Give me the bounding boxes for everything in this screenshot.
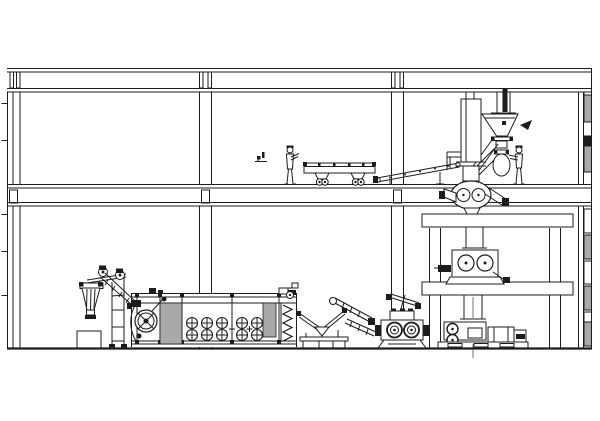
- roller-mill: [375, 294, 429, 348]
- worker-bagger: [509, 146, 525, 185]
- floor-item: [255, 152, 267, 162]
- dryer: [127, 283, 298, 347]
- elevation-drawing: [0, 0, 600, 421]
- tower-platform-upper: [422, 214, 573, 227]
- right-wall: [578, 68, 592, 348]
- mill-upper: [434, 227, 510, 284]
- plant-elevation-page: [0, 0, 600, 421]
- wall-tick-marks: [2, 104, 8, 296]
- upstairs-conveyor: [303, 162, 376, 185]
- screener: [296, 308, 348, 348]
- column-left: [8, 68, 21, 348]
- worker-upstairs: [285, 146, 300, 185]
